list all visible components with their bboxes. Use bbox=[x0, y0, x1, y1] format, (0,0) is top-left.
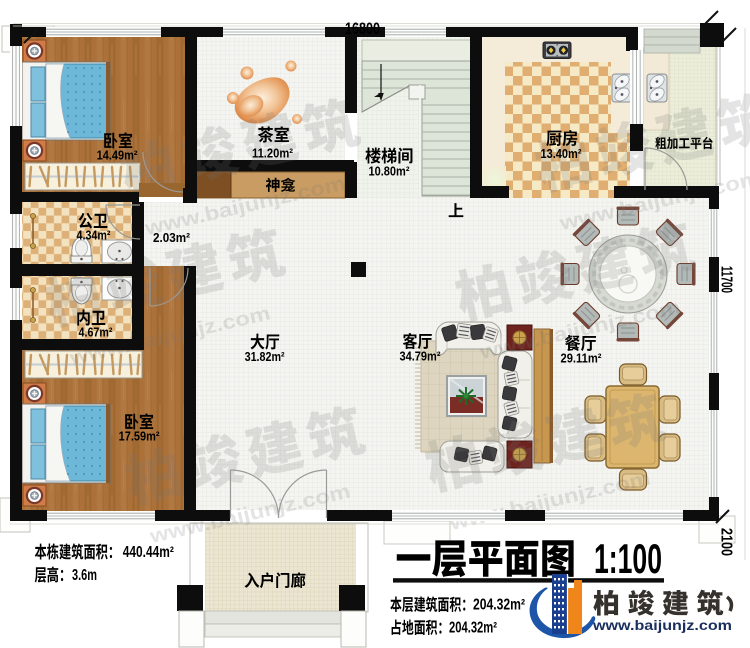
svg-text:13.40m²: 13.40m² bbox=[541, 147, 582, 161]
svg-text:1:100: 1:100 bbox=[594, 535, 662, 582]
svg-text:11.20m²: 11.20m² bbox=[252, 147, 293, 161]
svg-text:29.11m²: 29.11m² bbox=[561, 352, 602, 366]
svg-text:17.59m²: 17.59m² bbox=[119, 430, 160, 444]
svg-text:2100: 2100 bbox=[718, 528, 735, 556]
svg-text:3.6m: 3.6m bbox=[72, 567, 97, 584]
svg-text:34.79m²: 34.79m² bbox=[400, 350, 441, 364]
svg-text:440.44m²: 440.44m² bbox=[123, 544, 174, 561]
svg-text:2.03m²: 2.03m² bbox=[153, 231, 190, 245]
svg-text:14.49m²: 14.49m² bbox=[97, 149, 138, 163]
svg-text:31.82m²: 31.82m² bbox=[245, 350, 285, 364]
svg-text:4.34m²: 4.34m² bbox=[77, 229, 111, 243]
svg-text:11700: 11700 bbox=[718, 266, 735, 293]
svg-text:204.32m²: 204.32m² bbox=[449, 620, 497, 637]
svg-text:10.80m²: 10.80m² bbox=[369, 165, 410, 179]
svg-text:4.67m²: 4.67m² bbox=[79, 326, 113, 340]
svg-text:16800: 16800 bbox=[345, 19, 380, 38]
svg-text:www.baijunjz.com: www.baijunjz.com bbox=[592, 617, 732, 633]
svg-text:204.32m²: 204.32m² bbox=[473, 597, 525, 614]
